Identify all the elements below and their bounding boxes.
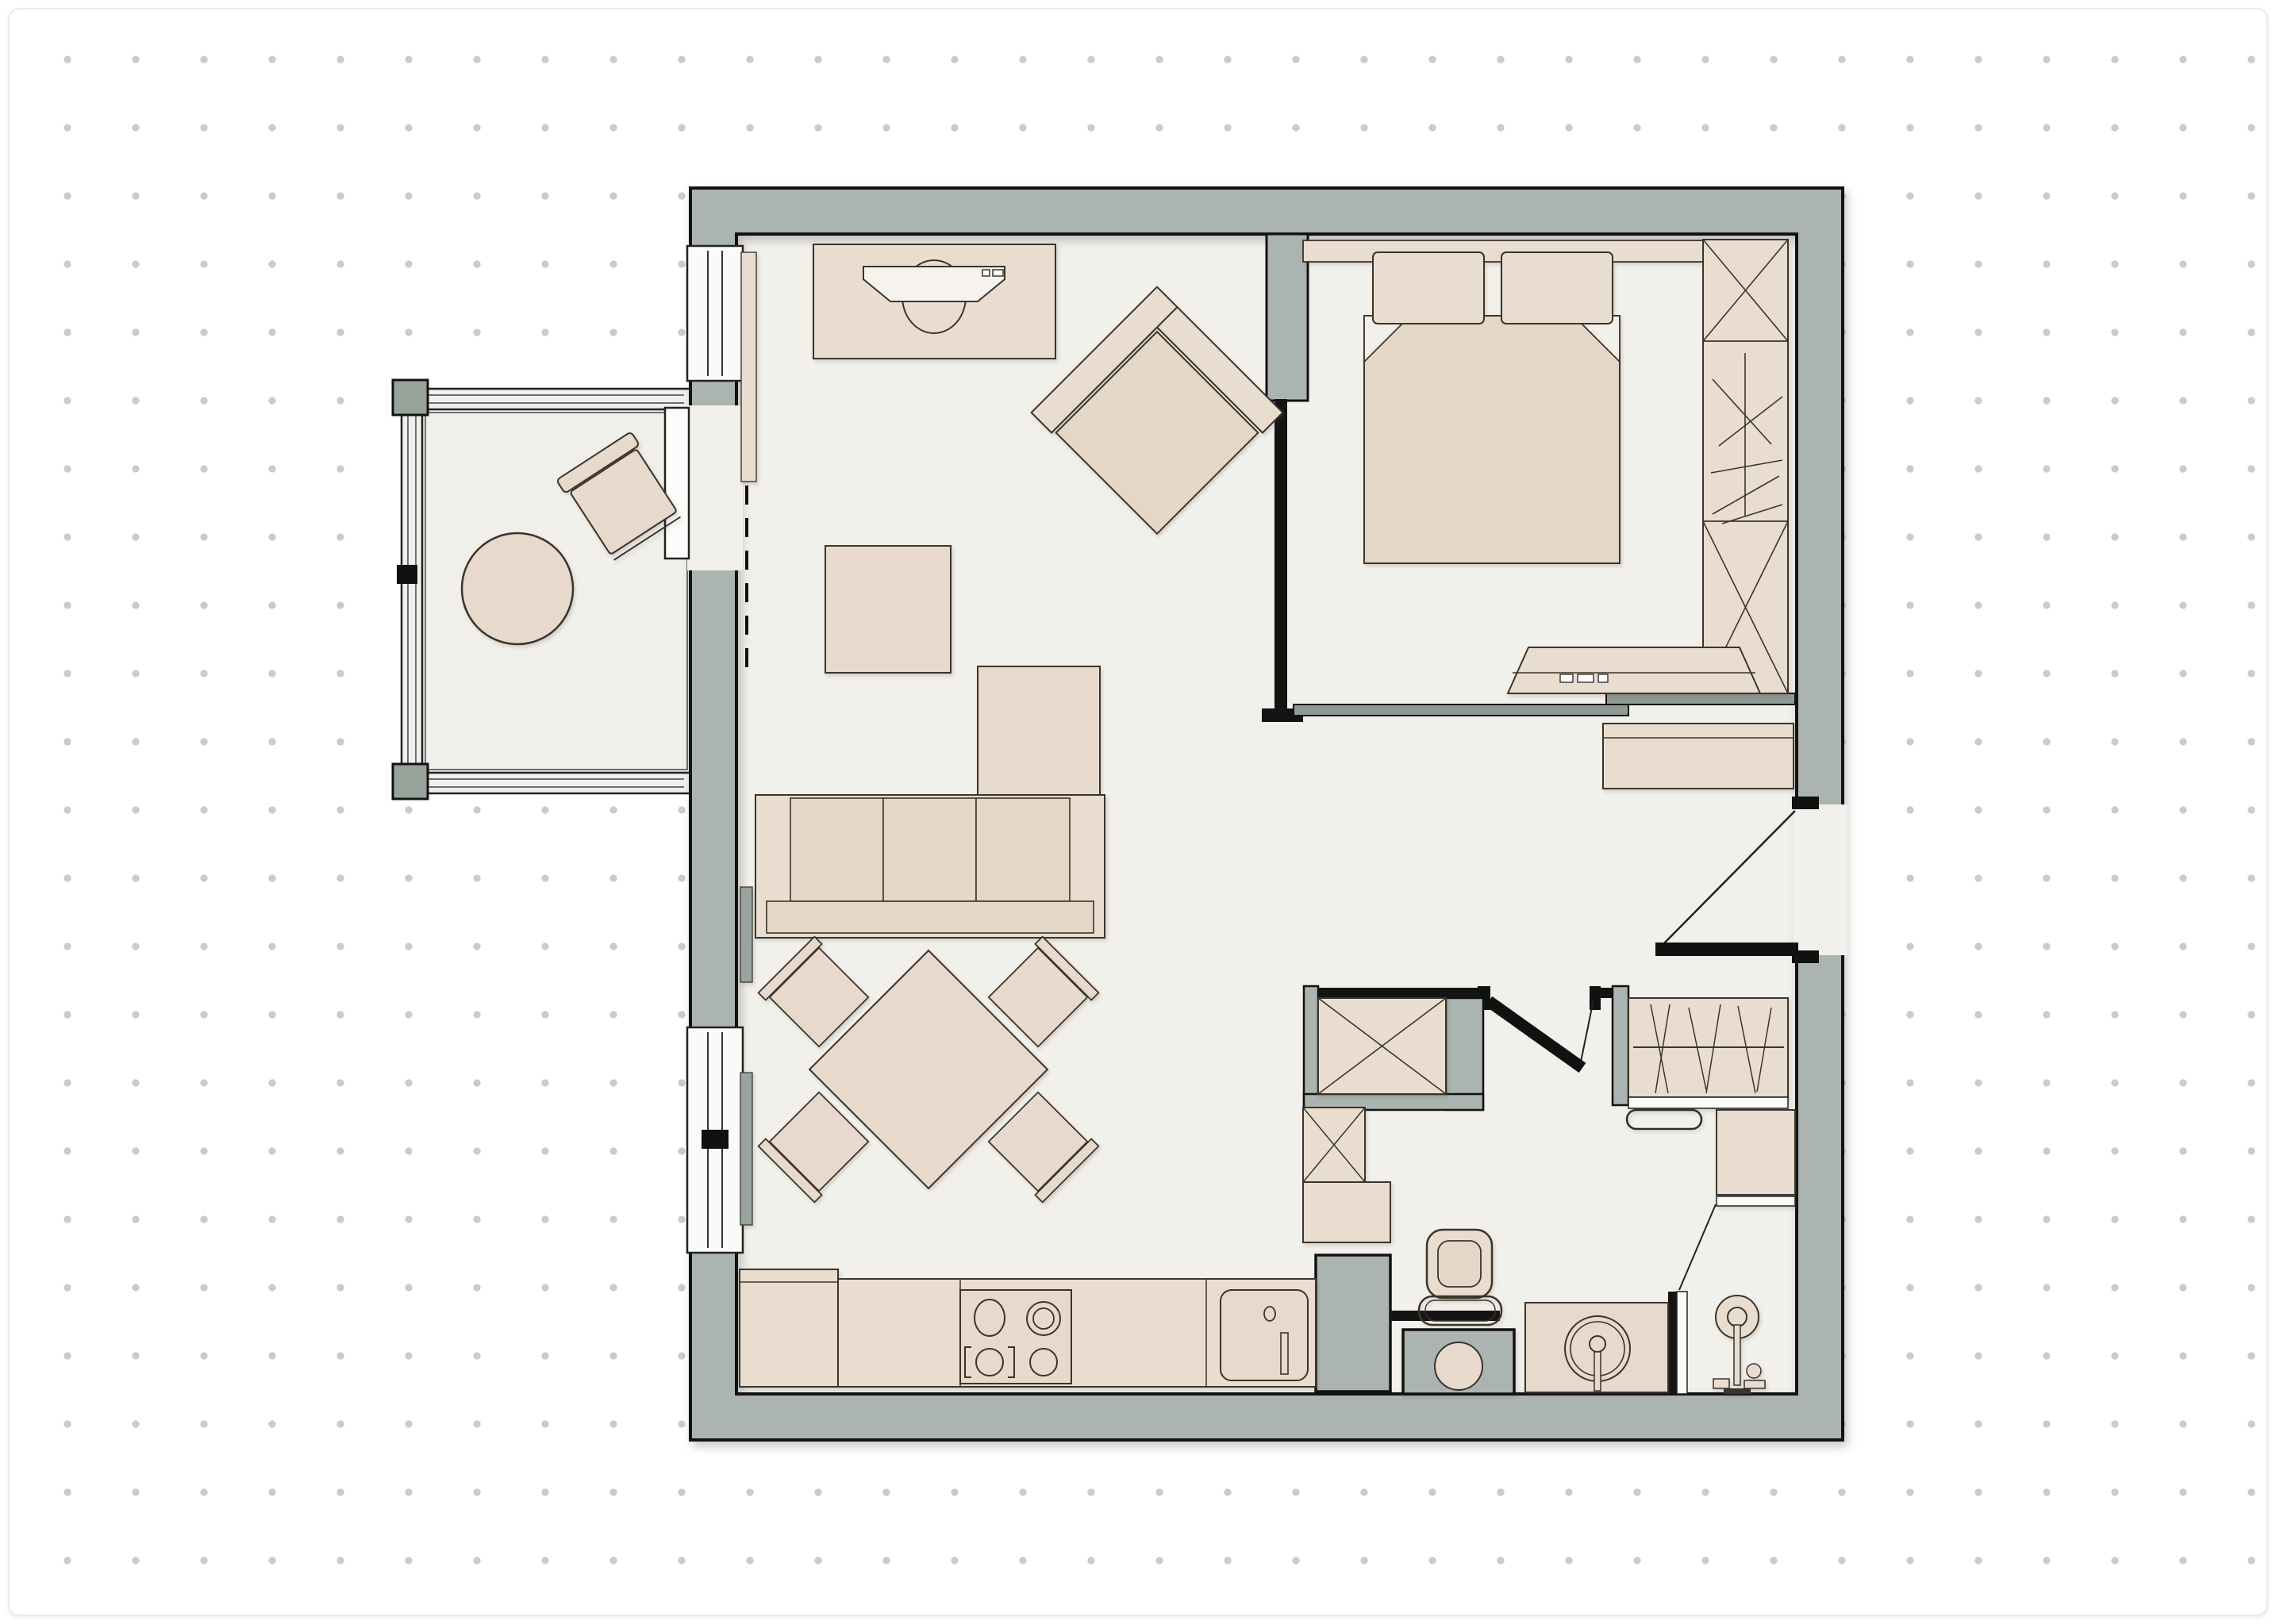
floor-plan xyxy=(0,0,2276,1624)
tv-detail xyxy=(982,270,990,276)
closet-stub-wall[interactable] xyxy=(1613,986,1628,1105)
sofa-cushion xyxy=(976,798,1070,901)
closet-hanging[interactable] xyxy=(1628,998,1788,1108)
shelf-cabinet[interactable] xyxy=(1717,1110,1795,1195)
balcony-rail-bottom[interactable] xyxy=(402,773,690,793)
shower-glass-panel[interactable] xyxy=(1677,1292,1687,1394)
storage-box-crossed[interactable] xyxy=(1303,1108,1365,1182)
bedroom-sliding-leaf-room[interactable] xyxy=(1606,693,1795,705)
shower-partition-wall[interactable] xyxy=(1668,1292,1677,1394)
balcony-rail-connector xyxy=(397,565,417,584)
living-left-lower-window[interactable] xyxy=(687,1027,743,1253)
balcony-post-bottom[interactable] xyxy=(393,764,428,799)
bench-detail xyxy=(1560,674,1573,682)
wardrobe[interactable] xyxy=(1703,240,1788,693)
bathroom-top-wall-left[interactable] xyxy=(1318,988,1479,998)
partition-pier[interactable] xyxy=(1267,234,1308,401)
console-table[interactable] xyxy=(978,666,1100,795)
washing-machine[interactable] xyxy=(1403,1330,1514,1394)
kitchen-sink[interactable] xyxy=(1221,1290,1308,1380)
wall-radiator[interactable] xyxy=(741,252,756,482)
sideboard[interactable] xyxy=(1603,724,1794,789)
window-divider xyxy=(702,1130,729,1149)
living-bedroom-partition[interactable] xyxy=(1274,399,1287,708)
stove[interactable] xyxy=(960,1290,1071,1384)
base-cabinet[interactable] xyxy=(740,1269,838,1387)
bench-detail xyxy=(1598,674,1608,682)
kitchen-furniture xyxy=(740,1269,1316,1387)
sofa[interactable] xyxy=(755,795,1105,938)
bench-detail xyxy=(1578,674,1594,682)
closet-crossed[interactable] xyxy=(1318,998,1446,1094)
bed-duvet xyxy=(1364,316,1620,563)
shower-riser xyxy=(1734,1325,1740,1385)
curtain-panel-lower[interactable] xyxy=(740,1073,752,1225)
bedroom-tv-bench[interactable] xyxy=(1508,647,1760,693)
balcony-door-panel[interactable] xyxy=(665,408,689,559)
tall-cabinet[interactable] xyxy=(1303,1182,1390,1242)
service-shaft[interactable] xyxy=(1316,1255,1390,1392)
sofa-cushion xyxy=(883,798,976,901)
balcony-rail-top[interactable] xyxy=(402,389,690,409)
balcony-round-table[interactable] xyxy=(462,533,573,644)
entry-door-leaf[interactable] xyxy=(1655,943,1798,956)
pillow xyxy=(1373,252,1484,324)
sofa-cushion xyxy=(790,798,883,901)
vanity-sink[interactable] xyxy=(1525,1303,1668,1392)
entry-jamb-top xyxy=(1792,797,1819,809)
coffee-table[interactable] xyxy=(825,546,951,673)
washer-drum xyxy=(1435,1342,1482,1390)
pillow xyxy=(1501,252,1613,324)
shelf-cabinet-edge xyxy=(1717,1196,1795,1206)
shower-base xyxy=(1724,1388,1751,1394)
tv-detail xyxy=(993,270,1003,276)
sofa-back xyxy=(767,901,1094,933)
faucet xyxy=(1590,1336,1605,1352)
balcony-rail-left[interactable] xyxy=(402,389,422,793)
curtain-panel-upper[interactable] xyxy=(740,887,752,982)
kitchen-faucet xyxy=(1281,1333,1288,1374)
faucet-stem xyxy=(1594,1352,1601,1391)
living-left-upper-window[interactable] xyxy=(687,246,743,381)
balcony-post-top[interactable] xyxy=(393,380,428,415)
closet-shelf-edge xyxy=(1628,1097,1788,1108)
dining-set[interactable] xyxy=(759,937,1099,1203)
closet-pocket-wall-left[interactable] xyxy=(1304,986,1318,1110)
bedroom-sliding-leaf-hall[interactable] xyxy=(1294,705,1628,716)
washer-nook-wall[interactable] xyxy=(1390,1311,1500,1321)
